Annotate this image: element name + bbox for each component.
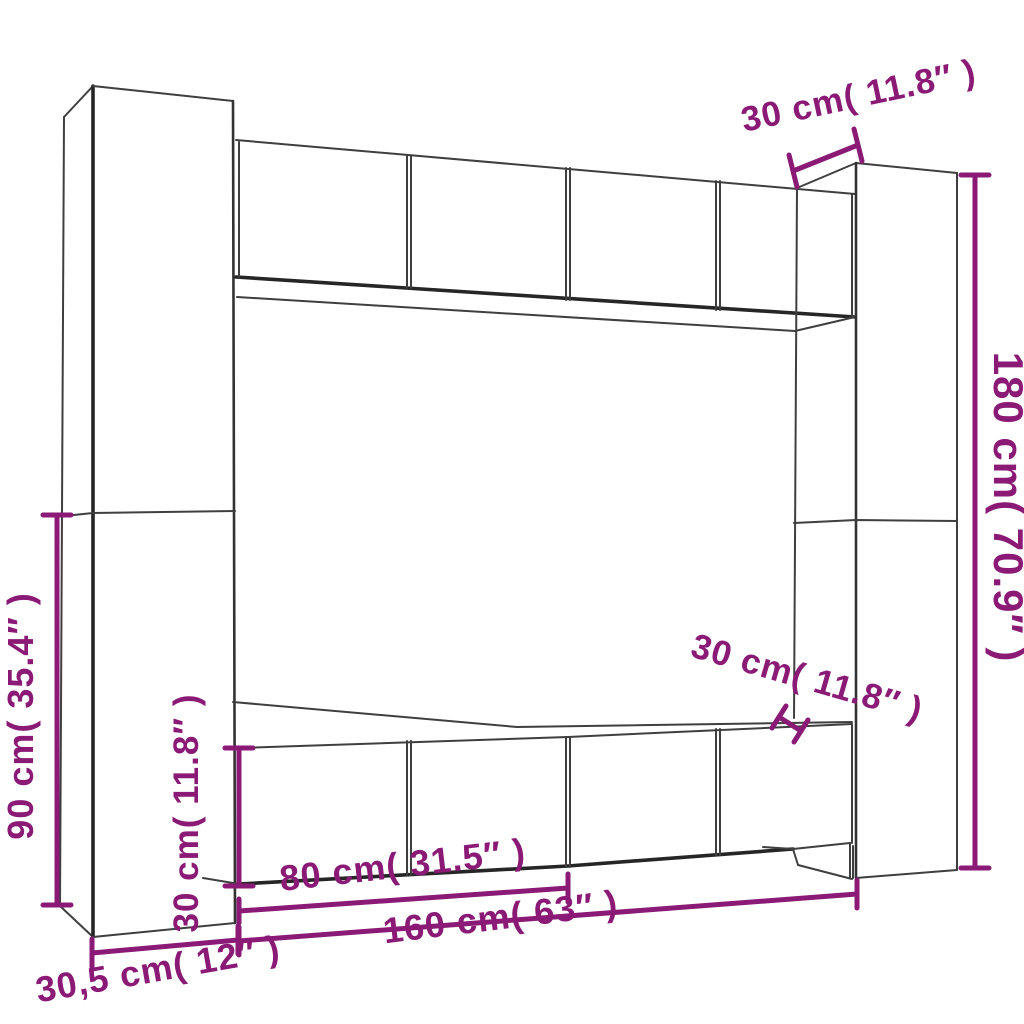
top-row-divider-2 [566,168,570,300]
left-column-bottom-edge [93,923,235,937]
left-column-top-edge [93,86,233,101]
dim-label-width-80: 80 cm( 31.5″ ) [277,830,527,899]
top-row-top-edge [236,140,855,194]
top-row-underside-back-edge [237,297,795,331]
right-column-bottom-slant [798,865,852,879]
furniture-dimension-diagram: 30 cm( 11.8″ ) 180 cm( 70.9″ ) 90 cm( 35… [0,0,1024,1024]
bottom-row-front-top-edge [239,724,852,748]
dimension-height-right: 180 cm( 70.9″ ) [961,175,1024,868]
dimension-drawing-canvas: 30 cm( 11.8″ ) 180 cm( 70.9″ ) 90 cm( 35… [0,0,1024,1024]
bottom-row-back-bottom-stub [763,847,793,849]
left-column-top-slant [64,86,93,117]
top-row-divider-1 [407,156,411,288]
top-row-right-end-bottom-slant [795,317,855,331]
bottom-row-right-end-back-corner [793,849,798,865]
right-column-top-edge [856,163,957,173]
top-row-front-bottom-edge [236,277,855,317]
top-row-divider-3 [716,181,720,310]
dim-label-width-30-5: 30,5 cm( 12″ ) [32,927,283,1010]
left-column-cabinets [60,86,235,937]
dim-label-height-bottom-row: 30 cm( 11.8″ ) [167,694,206,933]
dimension-height-bottom-row: 30 cm( 11.8″ ) [167,694,253,933]
dimension-depth-top: 30 cm( 11.8″ ) [738,52,980,187]
dim-label-height-left: 90 cm( 35.4″ ) [0,592,41,839]
bottom-row-right-end-bottom-edge [793,843,850,849]
dim-label-height-right: 180 cm( 70.9″ ) [985,352,1024,663]
right-column-back-edge [794,188,797,718]
bottom-row-right-end-edge [850,843,853,878]
right-column-cabinets [794,163,957,878]
right-column-bottom-edge [856,870,957,878]
bottom-row-divider-2 [566,737,570,867]
dim-label-depth-top: 30 cm( 11.8″ ) [738,52,980,140]
top-row-cabinets [236,140,855,331]
bottom-row-back-top-edge [233,702,852,727]
bottom-row-divider-3 [716,729,720,855]
left-column-back-edge [60,117,64,906]
dim-label-depth-right: 30 cm( 11.8″ ) [687,626,927,729]
left-column-bottom-slant [60,906,93,937]
right-column-mid-divider [794,520,957,523]
dimension-width-30-5: 30,5 cm( 12″ ) [32,926,283,1010]
left-column-mid-divider [64,511,235,516]
